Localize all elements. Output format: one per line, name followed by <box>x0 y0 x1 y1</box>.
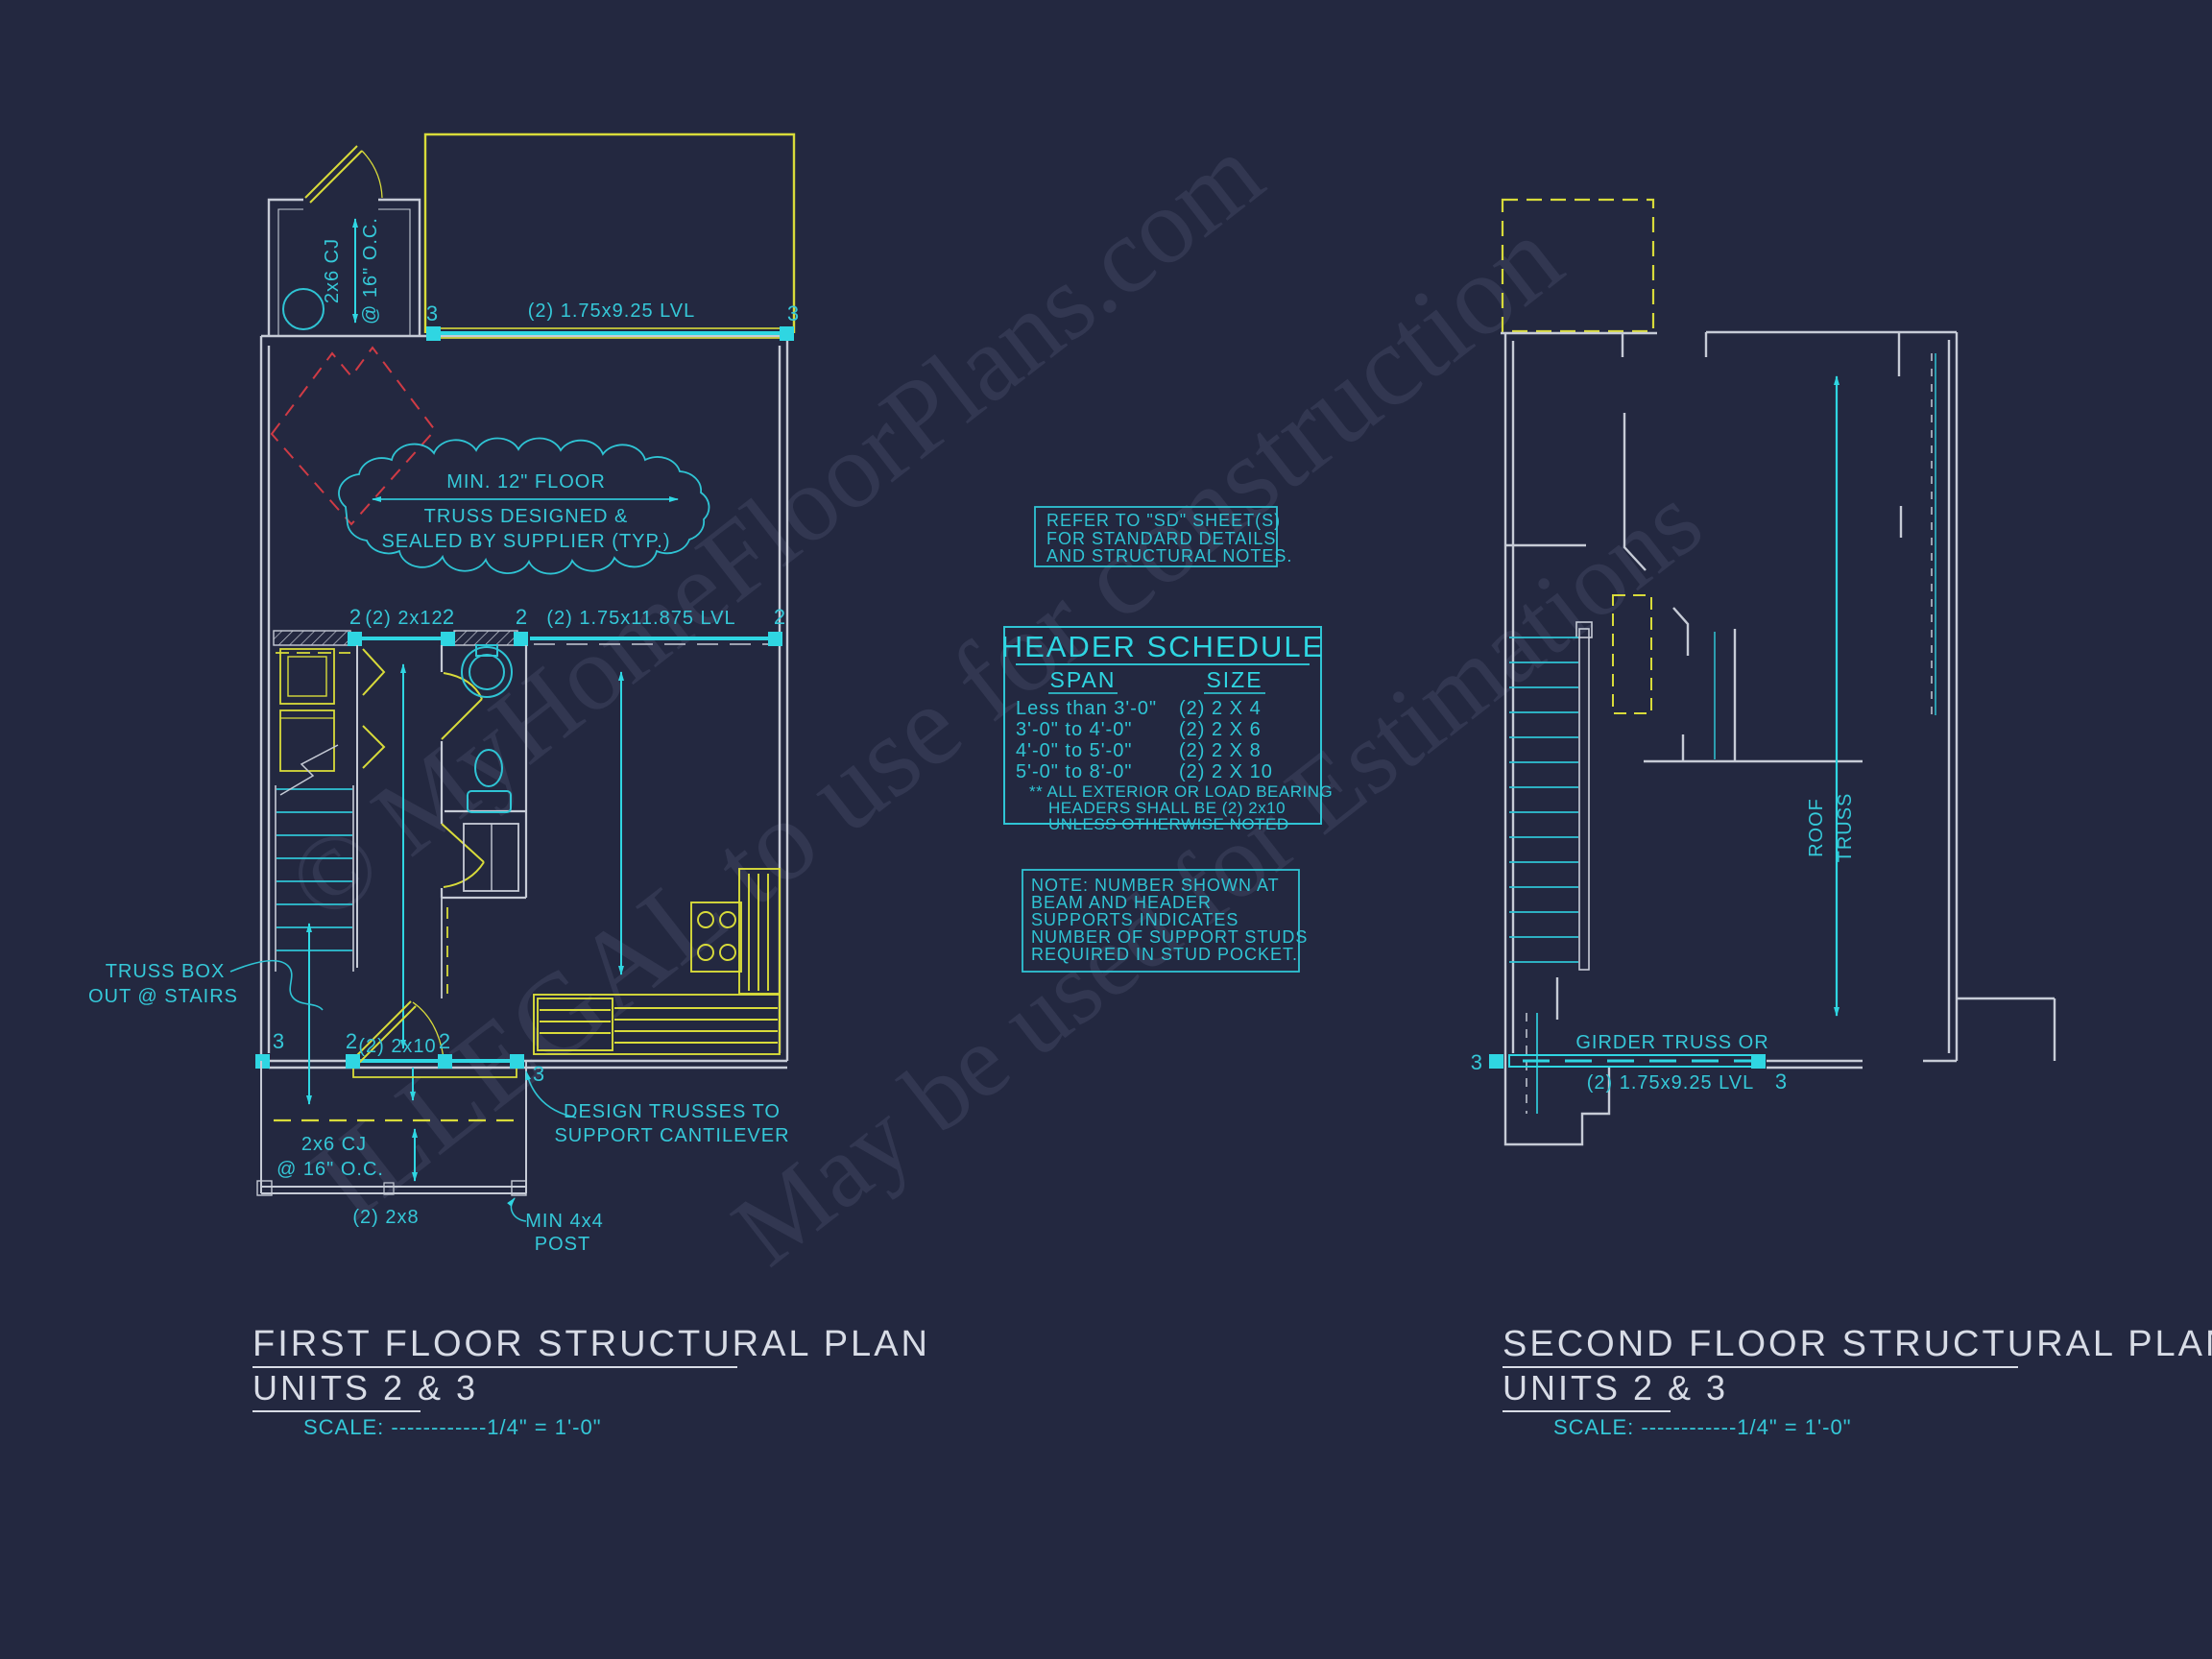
schedule-span-cell: Less than 3'-0" <box>1016 698 1157 719</box>
first-floor-scale: SCALE: ------------1/4" = 1'-0" <box>303 1415 602 1439</box>
structural-plan-drawing: © MyHomeFloorPlans.com ILLEGAL to use fo… <box>0 0 2212 1659</box>
header-schedule-col-span: SPAN <box>1050 667 1117 692</box>
cloud-note-line-3: SEALED BY SUPPLIER (TYP.) <box>381 531 670 552</box>
footnote-line-3: UNLESS OTHERWISE NOTED <box>1048 815 1289 833</box>
stud-note-line-1: NOTE: NUMBER SHOWN AT <box>1031 876 1280 895</box>
second-floor-scale: SCALE: ------------1/4" = 1'-0" <box>1553 1415 1852 1439</box>
sd-note-box: REFER TO "SD" SHEET(S) FOR STANDARD DETA… <box>1035 507 1292 566</box>
roof-truss-label-2: TRUSS <box>1835 793 1856 863</box>
support-count: 2 <box>346 1029 357 1053</box>
entry-cj-label-1: 2x6 CJ <box>322 238 343 303</box>
entry-door-swing <box>305 146 382 203</box>
sd-note-line-2: FOR STANDARD DETAILS <box>1046 529 1276 548</box>
girder-label-1: GIRDER TRUSS OR <box>1575 1032 1768 1053</box>
support-count: 3 <box>533 1062 544 1086</box>
top-lvl-beam: 3 3 (2) 1.75x9.25 LVL <box>426 301 799 341</box>
sd-note-line-1: REFER TO "SD" SHEET(S) <box>1046 511 1281 530</box>
entry-cj-label-2: @ 16" O.C. <box>360 217 381 325</box>
stud-pocket-note-box: NOTE: NUMBER SHOWN AT BEAM AND HEADER SU… <box>1022 870 1308 972</box>
schedule-size-cell: (2) 2 X 10 <box>1179 761 1273 782</box>
support-count: 3 <box>1775 1070 1787 1094</box>
first-floor-subtitle: UNITS 2 & 3 <box>252 1368 478 1407</box>
support-count: 3 <box>273 1029 284 1053</box>
post-callout: MIN 4x4 POST <box>511 1198 603 1255</box>
cantilever-label-1: DESIGN TRUSSES TO <box>564 1101 781 1122</box>
girder-label-2: (2) 1.75x9.25 LVL <box>1587 1072 1755 1094</box>
header-schedule-title: HEADER SCHEDULE <box>1001 630 1325 663</box>
header-schedule-rows: Less than 3'-0" (2) 2 X 4 3'-0" to 4'-0"… <box>1016 698 1273 782</box>
water-heater-icon <box>283 289 324 329</box>
stud-note-line-2: BEAM AND HEADER <box>1031 893 1212 912</box>
schedule-span-cell: 5'-0" to 8'-0" <box>1016 761 1132 782</box>
schedule-size-cell: (2) 2 X 6 <box>1179 719 1262 740</box>
future-feature-dashed <box>272 348 435 524</box>
deck-cj-label-2: @ 16" O.C. <box>276 1159 384 1180</box>
beam-2x10-label: (2) 2x10 <box>358 1036 436 1057</box>
beam-2x12-label: (2) 2x12 <box>365 608 443 629</box>
post-label-2: POST <box>535 1234 590 1255</box>
top-beam-label: (2) 1.75x9.25 LVL <box>528 301 696 322</box>
support-count: 2 <box>774 605 785 629</box>
second-floor-title-block: SECOND FLOOR STRUCTURAL PLAN UNITS 2 & 3… <box>1503 1324 2212 1439</box>
second-floor-subtitle: UNITS 2 & 3 <box>1503 1368 1728 1407</box>
schedule-size-cell: (2) 2 X 8 <box>1179 740 1262 761</box>
post-label-1: MIN 4x4 <box>525 1211 603 1232</box>
truss-box-out-note: TRUSS BOX OUT @ STAIRS <box>88 961 323 1010</box>
schedule-span-cell: 4'-0" to 5'-0" <box>1016 740 1132 761</box>
cloud-note-line-2: TRUSS DESIGNED & <box>424 506 629 527</box>
mid-lvl-beam-label: (2) 1.75x11.875 LVL <box>546 608 735 629</box>
cantilever-label-2: SUPPORT CANTILEVER <box>554 1125 789 1146</box>
stair-break-line <box>280 745 338 795</box>
window-wall-lines <box>1527 353 1935 1114</box>
first-floor-title-block: FIRST FLOOR STRUCTURAL PLAN UNITS 2 & 3 … <box>252 1324 930 1439</box>
first-floor-title: FIRST FLOOR STRUCTURAL PLAN <box>252 1324 930 1364</box>
cad-sheet: © MyHomeFloorPlans.com ILLEGAL to use fo… <box>0 0 2212 1659</box>
support-count: 3 <box>426 301 438 325</box>
watermark: © MyHomeFloorPlans.com ILLEGAL to use fo… <box>266 113 1722 1288</box>
support-count: 2 <box>439 1029 450 1053</box>
sd-note-line-3: AND STRUCTURAL NOTES. <box>1046 546 1292 565</box>
stud-note-line-5: REQUIRED IN STUD POCKET. <box>1031 945 1298 964</box>
second-floor-walls <box>1501 332 2055 1144</box>
entry-cj-dimension: 2x6 CJ @ 16" O.C. <box>322 217 381 325</box>
truss-box-label-1: TRUSS BOX <box>106 961 226 982</box>
support-count: 2 <box>349 605 361 629</box>
second-floor-title: SECOND FLOOR STRUCTURAL PLAN <box>1503 1324 2212 1364</box>
schedule-size-cell: (2) 2 X 4 <box>1179 698 1262 719</box>
stud-note-line-3: SUPPORTS INDICATES <box>1031 910 1238 929</box>
roof-truss-label-1: ROOF <box>1806 798 1827 857</box>
stud-note-line-4: NUMBER OF SUPPORT STUDS <box>1031 927 1308 947</box>
support-count: 3 <box>787 301 799 325</box>
header-schedule-col-size: SIZE <box>1206 667 1262 692</box>
deck-cj-label-1: 2x6 CJ <box>301 1134 367 1155</box>
support-count: 2 <box>516 605 527 629</box>
support-count: 2 <box>443 605 454 629</box>
support-count: 3 <box>1471 1050 1482 1074</box>
header-schedule-table: HEADER SCHEDULE SPAN SIZE Less than 3'-0… <box>1001 627 1334 833</box>
cloud-note-line-1: MIN. 12" FLOOR <box>446 471 606 493</box>
schedule-span-cell: 3'-0" to 4'-0" <box>1016 719 1132 740</box>
mid-beam-row: 2 2 2 2 (2) 2x12 (2) 1.75x11.875 LVL <box>274 605 785 646</box>
bifold-door-icon <box>363 649 384 768</box>
roof-truss-direction: ROOF TRUSS <box>1806 376 1856 1016</box>
deck-beam-label: (2) 2x8 <box>352 1207 419 1228</box>
second-floor-plan: ROOF TRUSS 3 3 GIRDER TRUSS OR (2) 1.75x… <box>1471 200 2212 1439</box>
truss-box-label-2: OUT @ STAIRS <box>88 986 238 1007</box>
girder-truss-beam: 3 3 GIRDER TRUSS OR (2) 1.75x9.25 LVL <box>1471 1032 1787 1094</box>
